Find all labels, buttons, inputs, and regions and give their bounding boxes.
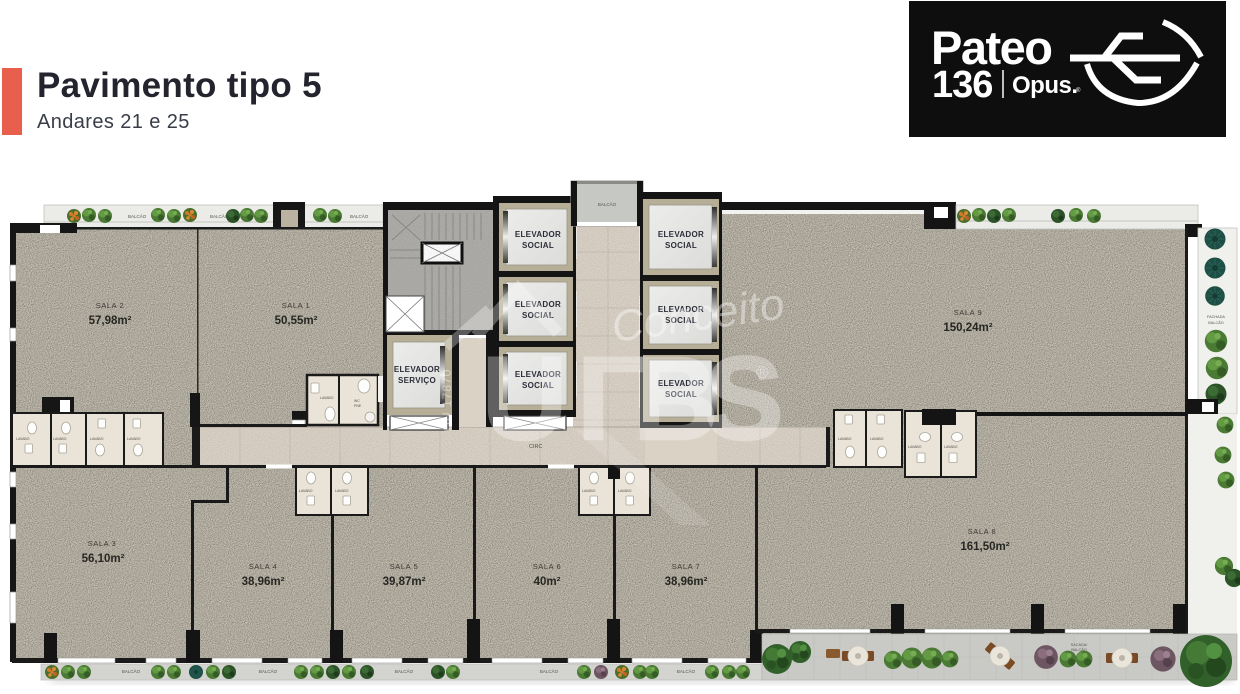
svg-text:BALCÃO: BALCÃO (259, 668, 278, 674)
svg-text:LAVABO: LAVABO (335, 489, 349, 493)
svg-text:LAVABO: LAVABO (53, 437, 67, 441)
svg-text:ELEVADOR: ELEVADOR (658, 230, 704, 239)
svg-text:SALA 7: SALA 7 (672, 562, 701, 571)
svg-text:LAVABO: LAVABO (838, 437, 852, 441)
svg-text:SALA 3: SALA 3 (88, 539, 117, 548)
svg-text:SACADA/: SACADA/ (1071, 643, 1089, 647)
svg-text:FACHADA: FACHADA (1207, 315, 1225, 319)
svg-text:LAVABO: LAVABO (870, 437, 884, 441)
svg-text:Opus.: Opus. (1012, 72, 1078, 99)
svg-text:38,96m²: 38,96m² (242, 576, 285, 588)
svg-text:BALCÃO: BALCÃO (598, 201, 617, 207)
svg-text:LAVABO: LAVABO (127, 437, 141, 441)
svg-text:SOCIAL: SOCIAL (522, 241, 554, 250)
svg-text:U: U (482, 333, 565, 465)
svg-text:WC: WC (354, 399, 360, 403)
svg-text:SALA 2: SALA 2 (96, 301, 125, 310)
svg-text:38,96m²: 38,96m² (665, 576, 708, 588)
svg-text:LAVABO: LAVABO (320, 396, 334, 400)
svg-text:BALCÃO: BALCÃO (1208, 320, 1223, 325)
svg-text:Pavimento tipo 5: Pavimento tipo 5 (37, 66, 322, 105)
svg-text:PNE: PNE (354, 404, 362, 408)
svg-text:S: S (705, 333, 784, 465)
svg-text:BALCÃO: BALCÃO (122, 668, 141, 674)
svg-text:BALCÃO: BALCÃO (540, 668, 559, 674)
svg-text:57,98m²: 57,98m² (89, 315, 132, 327)
svg-text:ELEVADOR: ELEVADOR (394, 365, 440, 374)
svg-text:40m²: 40m² (534, 576, 561, 588)
svg-text:®: ® (756, 363, 769, 382)
svg-text:150,24m²: 150,24m² (943, 322, 992, 334)
svg-text:BALCÃO: BALCÃO (350, 213, 369, 219)
svg-text:ELEVADOR: ELEVADOR (515, 230, 561, 239)
svg-text:SALA 1: SALA 1 (282, 301, 311, 310)
svg-text:LAVABO: LAVABO (944, 445, 958, 449)
svg-text:®: ® (1076, 87, 1081, 94)
svg-text:Andares 21 e 25: Andares 21 e 25 (37, 111, 190, 133)
svg-text:BALCÃO: BALCÃO (210, 213, 229, 219)
svg-text:SALA 5: SALA 5 (390, 562, 419, 571)
svg-text:BALCÃO: BALCÃO (395, 668, 414, 674)
svg-text:SALA 4: SALA 4 (249, 562, 278, 571)
svg-text:136: 136 (932, 64, 992, 106)
svg-text:BALCÃO: BALCÃO (677, 668, 696, 674)
svg-text:SALA 8: SALA 8 (968, 527, 997, 536)
svg-text:LAVABO: LAVABO (90, 437, 104, 441)
svg-text:LAVABO: LAVABO (618, 489, 632, 493)
svg-text:50,55m²: 50,55m² (275, 315, 318, 327)
svg-text:SALA 6: SALA 6 (533, 562, 562, 571)
svg-text:LAVABO: LAVABO (16, 437, 30, 441)
svg-text:SERVIÇO: SERVIÇO (398, 376, 436, 385)
svg-text:SALA 9: SALA 9 (954, 308, 983, 317)
svg-text:SOCIAL: SOCIAL (665, 241, 697, 250)
svg-text:LAVABO: LAVABO (908, 445, 922, 449)
svg-text:LAVABO: LAVABO (299, 489, 313, 493)
svg-text:LAVABO: LAVABO (582, 489, 596, 493)
svg-text:56,10m²: 56,10m² (82, 553, 125, 565)
svg-text:GU 17870: GU 17870 (440, 369, 454, 432)
svg-text:161,50m²: 161,50m² (960, 541, 1009, 553)
svg-text:BALCÃO: BALCÃO (128, 213, 147, 219)
svg-text:39,87m²: 39,87m² (383, 576, 426, 588)
